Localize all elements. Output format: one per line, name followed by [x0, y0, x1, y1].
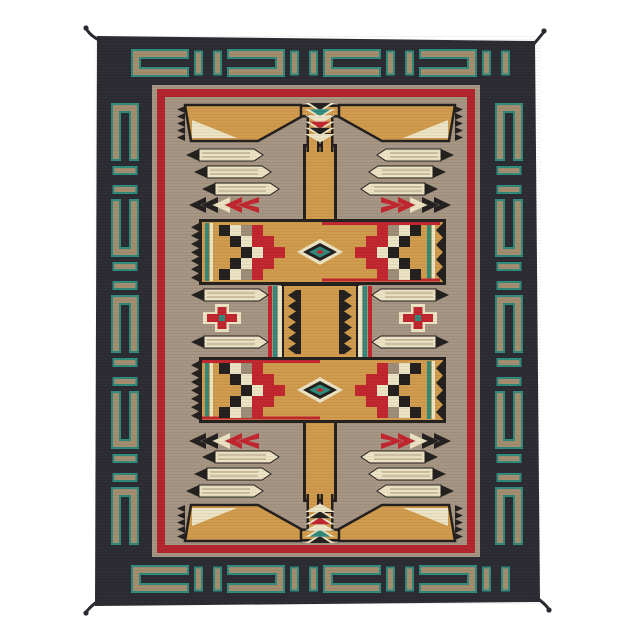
- product-photo-page: [0, 0, 640, 640]
- rug-photo: [0, 0, 640, 640]
- navajo-rug-image: [0, 0, 640, 640]
